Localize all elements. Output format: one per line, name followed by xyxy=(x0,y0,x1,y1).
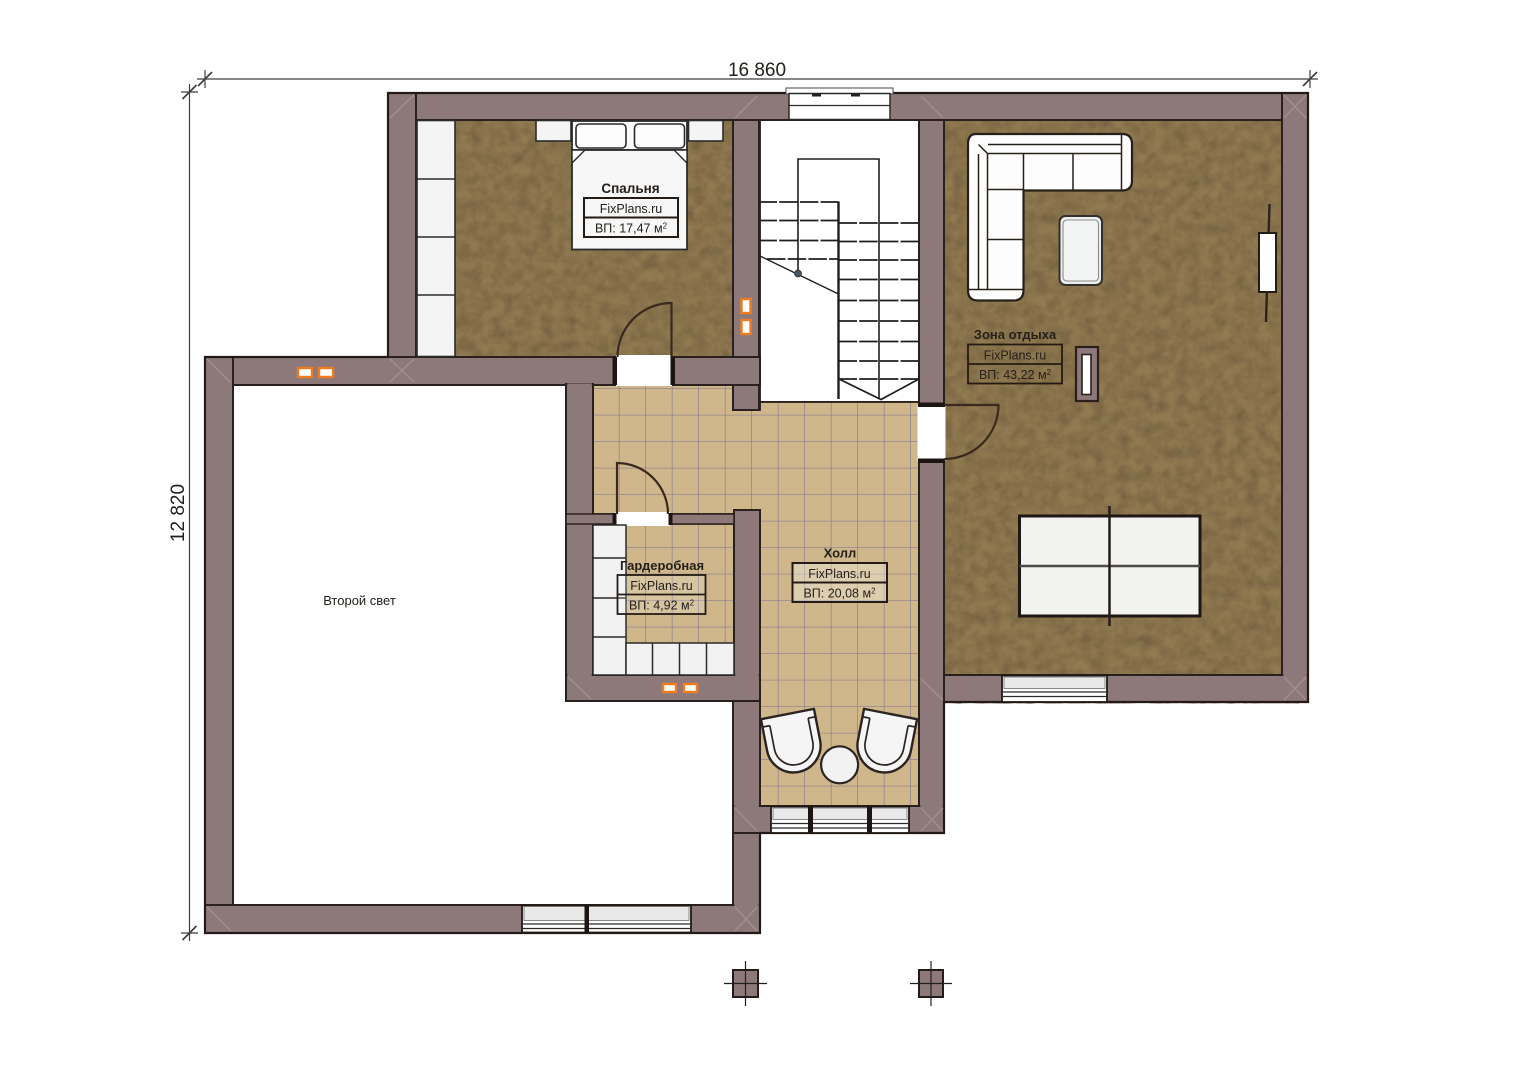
svg-text:FixPlans.ru: FixPlans.ru xyxy=(630,579,693,593)
svg-text:16 860: 16 860 xyxy=(728,60,786,81)
svg-text:Холл: Холл xyxy=(824,546,857,561)
svg-text:FixPlans.ru: FixPlans.ru xyxy=(984,349,1047,363)
svg-text:FixPlans.ru: FixPlans.ru xyxy=(808,567,871,581)
svg-text:Спальня: Спальня xyxy=(601,181,659,196)
svg-text:Гардеробная: Гардеробная xyxy=(620,558,704,573)
svg-text:ВП: 17,47 м2: ВП: 17,47 м2 xyxy=(595,222,668,236)
svg-text:ВП: 4,92 м2: ВП: 4,92 м2 xyxy=(629,599,695,613)
svg-text:ВП: 43,22 м2: ВП: 43,22 м2 xyxy=(979,368,1052,382)
svg-text:Второй свет: Второй свет xyxy=(323,593,396,608)
svg-text:FixPlans.ru: FixPlans.ru xyxy=(600,202,663,216)
svg-text:ВП: 20,08 м2: ВП: 20,08 м2 xyxy=(803,587,876,601)
svg-text:12 820: 12 820 xyxy=(168,484,189,542)
svg-text:Зона отдыха: Зона отдыха xyxy=(974,327,1057,342)
